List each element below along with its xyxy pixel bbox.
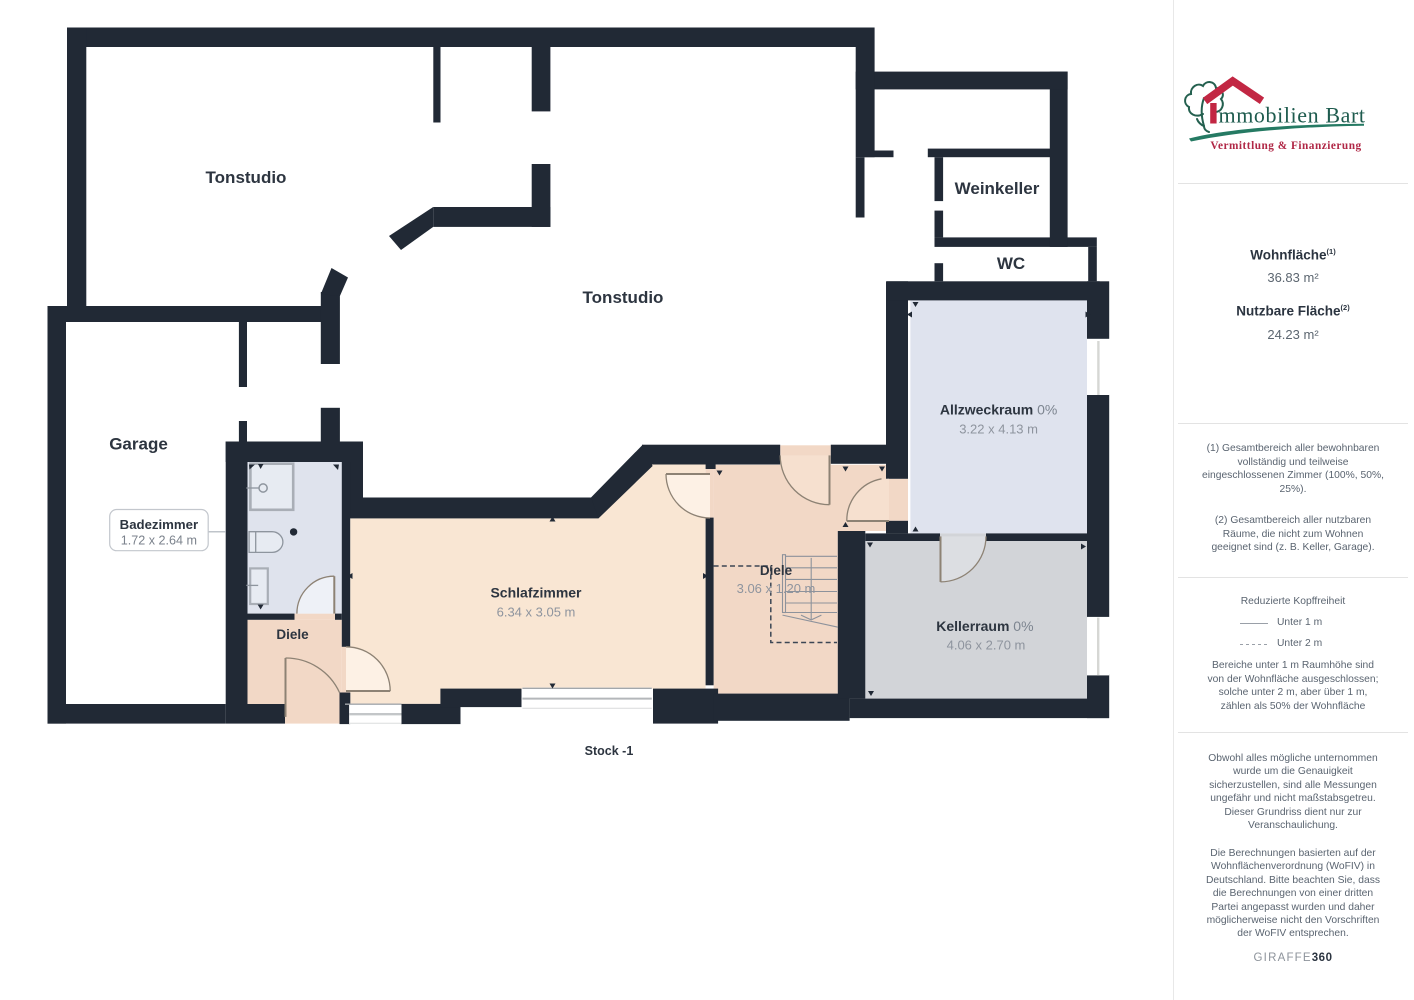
- svg-text:Badezimmer: Badezimmer: [120, 517, 198, 532]
- svg-text:Tonstudio: Tonstudio: [206, 168, 287, 187]
- svg-text:Kellerraum 0%: Kellerraum 0%: [936, 618, 1033, 634]
- svg-text:Garage: Garage: [109, 435, 168, 454]
- svg-text:1.72 x 2.64 m: 1.72 x 2.64 m: [121, 534, 197, 548]
- svg-text:4.06 x 2.70 m: 4.06 x 2.70 m: [947, 638, 1026, 653]
- svg-text:Diele: Diele: [276, 627, 309, 642]
- svg-text:3.06 x 1.20 m: 3.06 x 1.20 m: [737, 581, 816, 596]
- svg-text:Allzweckraum 0%: Allzweckraum 0%: [940, 402, 1058, 418]
- svg-text:6.34 x 3.05 m: 6.34 x 3.05 m: [497, 605, 576, 620]
- svg-text:mmobilien Bart: mmobilien Bart: [1219, 102, 1366, 127]
- svg-text:Weinkeller: Weinkeller: [955, 179, 1040, 198]
- svg-text:Tonstudio: Tonstudio: [583, 288, 664, 307]
- svg-text:Vermittlung & Finanzierung: Vermittlung & Finanzierung: [1210, 140, 1361, 152]
- svg-text:WC: WC: [997, 254, 1025, 273]
- svg-text:Diele: Diele: [760, 563, 793, 578]
- svg-text:Stock -1: Stock -1: [585, 744, 634, 758]
- svg-text:3.22 x 4.13 m: 3.22 x 4.13 m: [959, 422, 1038, 437]
- svg-text:Schlafzimmer: Schlafzimmer: [490, 585, 582, 601]
